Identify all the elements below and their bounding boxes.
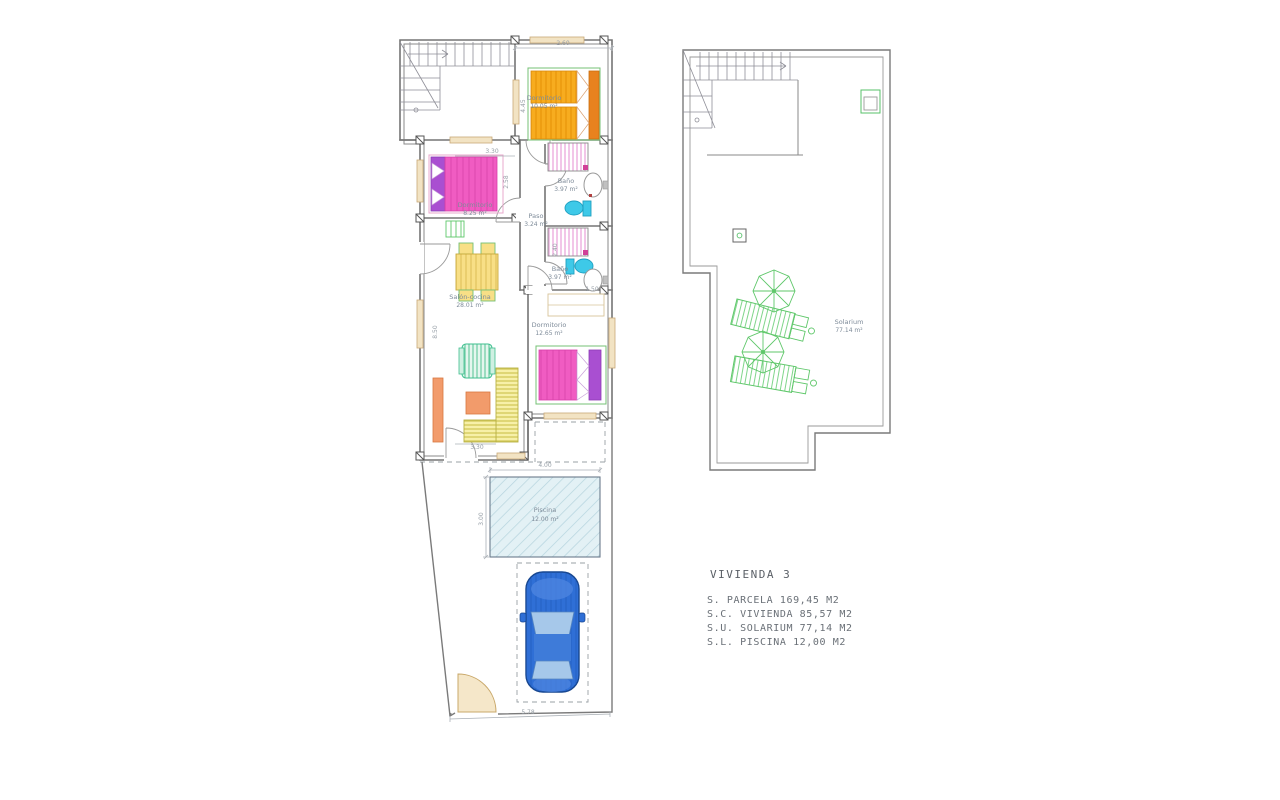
toilet-icon [565, 201, 591, 216]
dim-dorm-mid-width: 3.30 [485, 148, 499, 155]
room-area-solarium: 77.14 m² [835, 327, 863, 334]
dresser-icon [446, 221, 464, 237]
dim-terrace-door: 3.30 [470, 444, 484, 451]
parasol-icon [742, 331, 784, 373]
dim-plot-width: 5.78 [521, 709, 535, 716]
room-label-dormitorio-bottom: Dormitorio [532, 321, 567, 329]
room-label-bano-1: Baño [558, 177, 575, 185]
canvas-background [0, 0, 1280, 800]
room-label-salon: Salón-cocina [449, 293, 490, 301]
dim-dorm-mid-depth: 2.58 [503, 175, 510, 189]
summary-title: VIVIENDA 3 [710, 568, 791, 581]
room-area-dormitorio-top: 10.05 m² [530, 103, 558, 110]
chimney-icon [733, 229, 746, 242]
floorplan-sheet: Piscina 12.00 m² 2 [0, 0, 1280, 800]
room-area-dormitorio-bottom: 12.65 m² [535, 330, 563, 337]
dim-pool-depth: 3.00 [478, 512, 485, 526]
room-area-paso: 3.24 m² [524, 221, 548, 228]
room-label-dormitorio-mid: Dormitorio [458, 201, 493, 209]
window-icon [497, 453, 525, 459]
window-icon [609, 318, 615, 368]
room-area-piscina: 12.00 m² [531, 516, 559, 523]
dim-salon-height: 8.50 [432, 325, 439, 339]
room-label-paso: Paso [529, 212, 544, 220]
pool: Piscina 12.00 m² [490, 477, 600, 557]
parasol-icon [753, 270, 795, 312]
room-label-dormitorio-top: Dormitorio [527, 94, 562, 102]
shower-drain-icon [583, 250, 588, 255]
dim-top-width: 2.60 [556, 40, 570, 47]
dim-pool-width: 4.00 [538, 462, 552, 469]
sink-icon [584, 173, 602, 197]
dim-bano2-depth: 2.40 [552, 243, 559, 257]
window-icon [544, 413, 596, 419]
room-area-bano-2: 3.97 m² [548, 274, 572, 281]
car-icon [520, 572, 585, 692]
window-icon [513, 80, 519, 124]
room-area-bano-1: 3.97 m² [554, 186, 578, 193]
summary-line-piscina: S.L. PISCINA 12,00 M2 [707, 637, 846, 648]
dim-bano2-width: 1.50 [585, 286, 599, 293]
bed-icon [536, 346, 606, 404]
room-area-dormitorio-mid: 8.25 m² [463, 210, 487, 217]
window-icon [450, 137, 492, 143]
summary-line-parcela: S. PARCELA 169,45 M2 [707, 595, 839, 606]
room-label-bano-2: Baño [552, 265, 569, 273]
room-label-piscina: Piscina [534, 506, 556, 514]
shower-drain-icon [583, 165, 588, 170]
shower-icon [548, 143, 588, 171]
room-label-solarium: Solarium [835, 318, 864, 326]
summary-line-solarium: S.U. SOLARIUM 77,14 M2 [707, 623, 853, 634]
armchair-icon [459, 344, 495, 378]
window-icon [417, 160, 423, 202]
floorplan-drawing: Piscina 12.00 m² 2 [0, 0, 1280, 800]
window-icon [417, 300, 423, 348]
room-area-salon: 28.01 m² [456, 302, 484, 309]
summary-line-vivienda: S.C. VIVIENDA 85,57 M2 [707, 609, 853, 620]
